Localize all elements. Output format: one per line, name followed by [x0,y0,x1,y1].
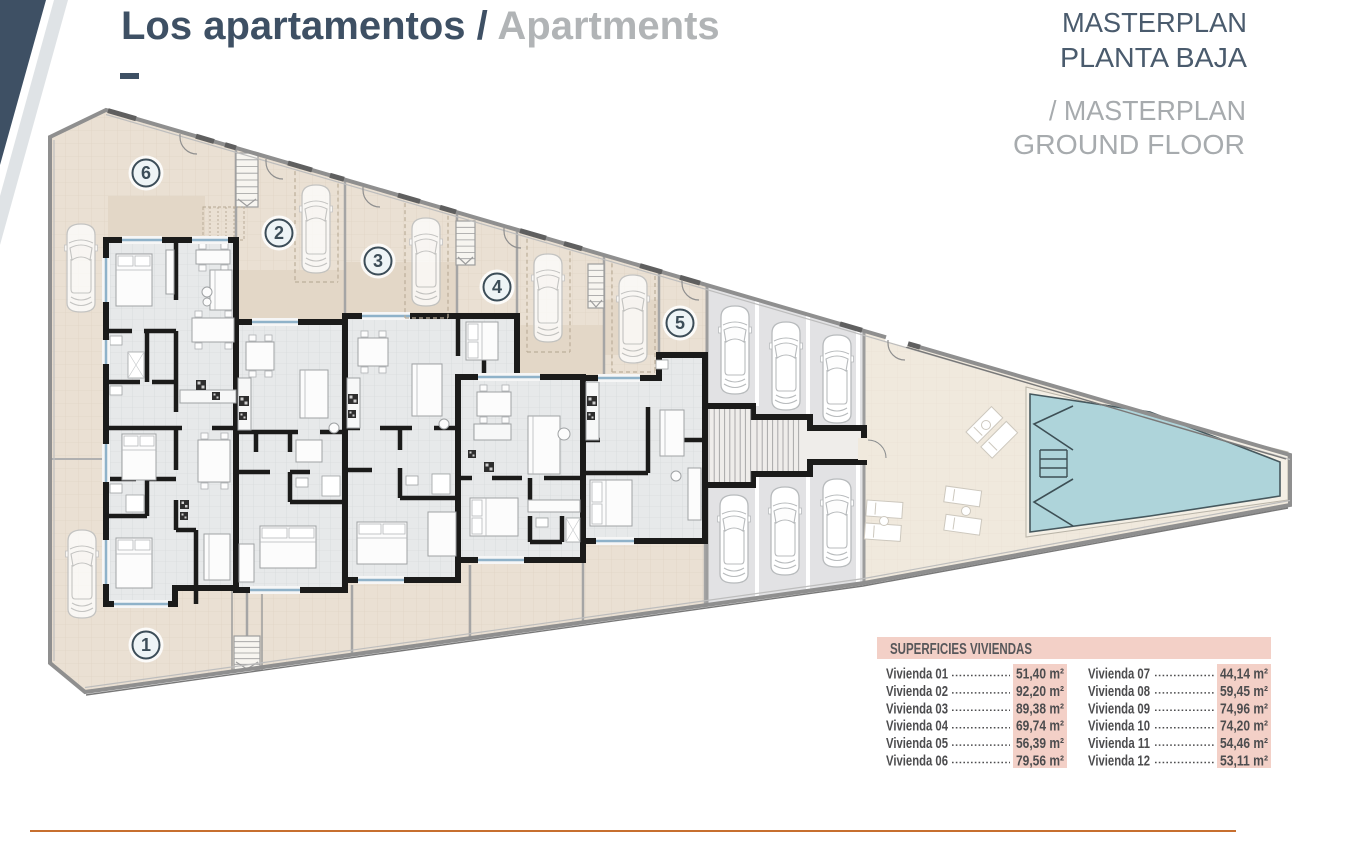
svg-text:MASTERPLAN: MASTERPLAN [1062,7,1247,38]
svg-text:89,38 m²: 89,38 m² [1016,701,1064,717]
svg-text:Los apartamentos / Apartments: Los apartamentos / Apartments [121,4,720,48]
svg-text:Vivienda 12: Vivienda 12 [1088,754,1150,770]
svg-text:Vivienda 01: Vivienda 01 [886,667,948,683]
svg-text:Vivienda 08: Vivienda 08 [1088,684,1150,700]
svg-text:92,20 m²: 92,20 m² [1016,684,1064,700]
svg-text:Vivienda 11: Vivienda 11 [1088,736,1150,752]
svg-text:/ MASTERPLAN: / MASTERPLAN [1049,95,1246,126]
svg-text:Vivienda 10: Vivienda 10 [1088,719,1150,735]
svg-text:2: 2 [274,223,284,243]
svg-text:Vivienda 09: Vivienda 09 [1088,701,1150,717]
svg-text:Vivienda 06: Vivienda 06 [886,754,948,770]
svg-text:5: 5 [675,313,685,333]
svg-text:74,20 m²: 74,20 m² [1220,719,1268,735]
svg-text:54,46 m²: 54,46 m² [1220,736,1268,752]
svg-text:3: 3 [373,251,383,271]
svg-text:69,74 m²: 69,74 m² [1016,719,1064,735]
svg-text:6: 6 [141,163,151,183]
svg-text:SUPERFICIES VIVIENDAS: SUPERFICIES VIVIENDAS [890,641,1032,658]
svg-text:53,11 m²: 53,11 m² [1220,754,1268,770]
svg-text:79,56 m²: 79,56 m² [1016,754,1064,770]
svg-text:4: 4 [492,277,502,297]
svg-text:GROUND FLOOR: GROUND FLOOR [1013,129,1245,160]
svg-text:1: 1 [141,635,151,655]
svg-text:Vivienda 07: Vivienda 07 [1088,667,1150,683]
svg-text:56,39 m²: 56,39 m² [1016,736,1064,752]
svg-text:Vivienda 02: Vivienda 02 [886,684,948,700]
svg-text:Vivienda 05: Vivienda 05 [886,736,948,752]
svg-text:44,14 m²: 44,14 m² [1220,667,1268,683]
svg-text:59,45 m²: 59,45 m² [1220,684,1268,700]
svg-text:Vivienda 04: Vivienda 04 [886,719,948,735]
svg-text:51,40 m²: 51,40 m² [1016,667,1064,683]
svg-text:74,96 m²: 74,96 m² [1220,701,1268,717]
svg-text:Vivienda 03: Vivienda 03 [886,701,948,717]
svg-text:PLANTA BAJA: PLANTA BAJA [1060,42,1247,73]
